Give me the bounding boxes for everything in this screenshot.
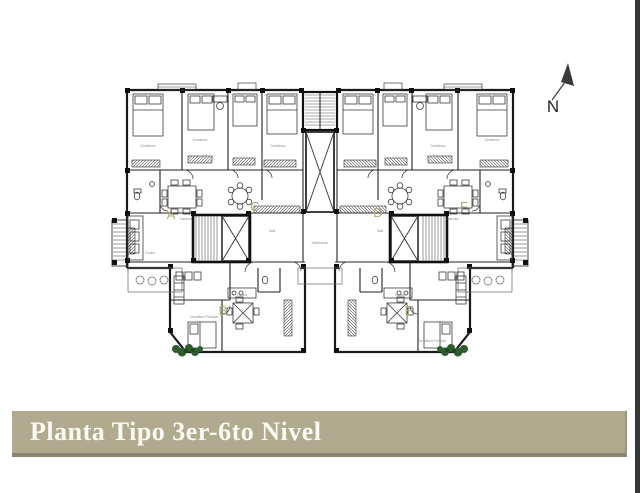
svg-text:Dormitorio Principal: Dormitorio Principal: [418, 339, 446, 343]
svg-text:Sala: Sala: [377, 229, 384, 233]
svg-text:Dormitorio: Dormitorio: [141, 144, 156, 148]
unit-label-d: D: [373, 205, 382, 220]
title-bar: Planta Tipo 3er-6to Nivel: [12, 411, 627, 457]
page-title: Planta Tipo 3er-6to Nivel: [12, 417, 322, 447]
svg-text:Dormitorio Principal: Dormitorio Principal: [190, 315, 218, 319]
svg-text:Dormitorio: Dormitorio: [431, 144, 446, 148]
svg-text:Cocina: Cocina: [237, 293, 247, 297]
svg-text:Dormitorio: Dormitorio: [271, 144, 286, 148]
svg-text:Distribución: Distribución: [312, 241, 329, 245]
svg-text:Comedor: Comedor: [445, 217, 459, 221]
unit-label-c: C: [250, 199, 259, 214]
page: A B C D E F Dormitorio Dormitorio Dormit…: [0, 0, 640, 493]
svg-text:Cocina: Cocina: [145, 251, 155, 255]
interior-walls: [127, 90, 305, 352]
plan-right-half: [334, 83, 528, 357]
svg-text:Dormitorio: Dormitorio: [193, 138, 208, 142]
svg-text:Comedor: Comedor: [179, 217, 193, 221]
unit-label-a: A: [167, 207, 176, 222]
exterior-walls: [127, 90, 305, 352]
plants: [172, 344, 203, 357]
north-arrow-icon: [561, 63, 574, 86]
north-arrow: N: [547, 63, 574, 116]
central-core: [298, 92, 342, 284]
unit-label-b: B: [219, 303, 228, 318]
stair-elevator-core: [193, 215, 250, 262]
svg-text:Sala: Sala: [269, 229, 276, 233]
north-label: N: [547, 97, 559, 116]
columns: [112, 88, 306, 353]
unit-label-f: F: [460, 199, 468, 214]
svg-text:Dormitorio: Dormitorio: [485, 138, 500, 142]
page-right-edge: [635, 0, 640, 493]
svg-text:Cocina: Cocina: [395, 293, 405, 297]
unit-label-e: E: [405, 303, 414, 318]
